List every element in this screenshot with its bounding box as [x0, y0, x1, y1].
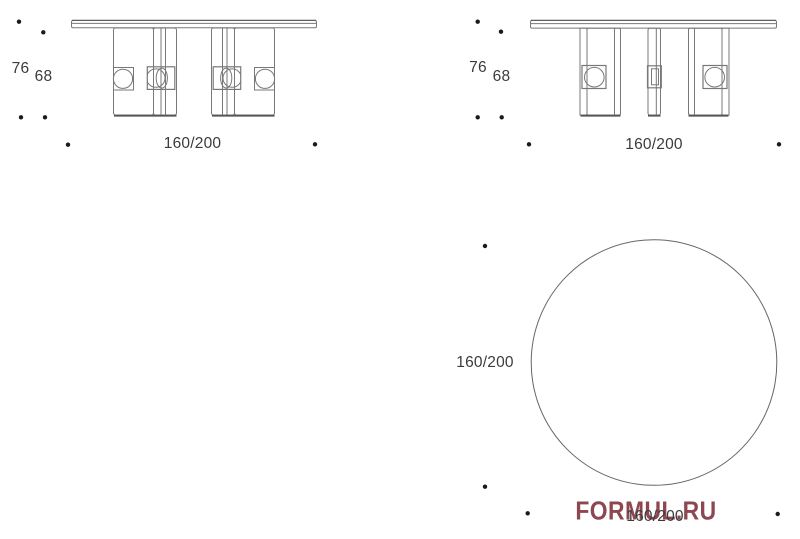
tabletop-outline-circle [531, 240, 777, 486]
dot [483, 485, 487, 489]
dot [43, 115, 47, 119]
side-right-leg-panel [689, 28, 723, 115]
front-right-connector-circle [255, 69, 274, 88]
dot [313, 142, 317, 146]
dot [476, 20, 480, 24]
side-inner-height-label: 68 [493, 68, 511, 86]
front-right-leg [212, 28, 275, 115]
side-center-support [648, 28, 662, 115]
dot [66, 143, 70, 147]
front-width-label: 160/200 [164, 135, 221, 153]
side-tabletop [531, 21, 777, 29]
side-center-joint-inner [652, 69, 659, 85]
dot [483, 244, 487, 248]
dimension-sheet: 76 68 160/200 76 68 160/200 160/200 FORM… [0, 0, 800, 539]
top-plan-drawing [531, 240, 777, 486]
side-right-joint-box [703, 66, 727, 89]
side-depth-label: 160/200 [625, 136, 682, 154]
dot [527, 142, 531, 146]
plan-diameter-bottom-label: 160/200 [626, 508, 683, 526]
side-right-leg [689, 28, 730, 115]
side-left-leg [580, 28, 621, 115]
front-tabletop [72, 21, 317, 28]
dot [17, 20, 21, 24]
front-inner-height-label: 68 [35, 68, 53, 86]
front-left-connector-circle [113, 69, 132, 88]
front-left-notch [114, 68, 134, 91]
side-height-label: 76 [469, 59, 487, 77]
front-left-leg [113, 28, 176, 115]
front-left-joint-cylinder [147, 68, 168, 88]
dot [526, 511, 530, 515]
dot [476, 115, 480, 119]
side-left-leg-panel [587, 28, 621, 115]
front-right-notch [255, 68, 275, 91]
front-height-label: 76 [12, 60, 30, 78]
technical-drawing-canvas [0, 0, 800, 539]
dot [776, 512, 780, 516]
side-left-joint-box [582, 66, 606, 89]
registration-dots [17, 20, 781, 517]
front-elevation-drawing [72, 20, 317, 116]
dot [499, 30, 503, 34]
plan-diameter-side-label: 160/200 [456, 354, 513, 372]
side-elevation-drawing [531, 20, 777, 116]
dot [777, 142, 781, 146]
dot [19, 115, 23, 119]
front-right-joint-cylinder [221, 68, 242, 88]
dot [500, 115, 504, 119]
dot [41, 30, 45, 34]
